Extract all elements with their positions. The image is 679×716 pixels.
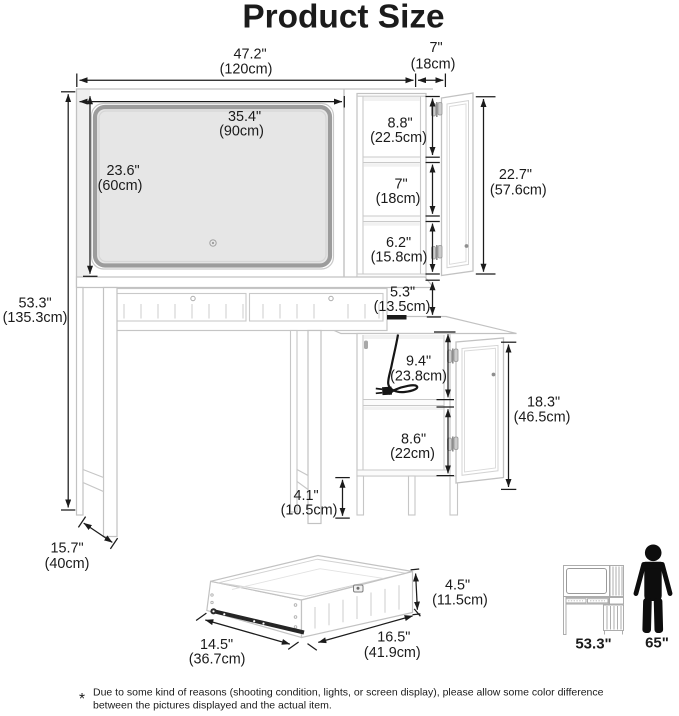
svg-text:65": 65"	[645, 635, 669, 652]
svg-text:7": 7"	[429, 40, 442, 56]
svg-text:(36.7cm): (36.7cm)	[189, 652, 246, 668]
svg-text:(46.5cm): (46.5cm)	[514, 410, 571, 426]
svg-text:14.5": 14.5"	[200, 637, 233, 653]
svg-text:(15.8cm): (15.8cm)	[371, 250, 428, 266]
svg-text:Product Size: Product Size	[242, 0, 444, 35]
svg-text:47.2": 47.2"	[233, 47, 266, 63]
svg-text:Due to some kind of reasons (s: Due to some kind of reasons (shooting co…	[93, 686, 604, 698]
svg-text:(18cm): (18cm)	[411, 57, 456, 73]
svg-text:(40cm): (40cm)	[45, 556, 90, 572]
svg-text:(41.9cm): (41.9cm)	[364, 645, 421, 661]
svg-text:16.5": 16.5"	[377, 630, 410, 646]
svg-text:(22.5cm): (22.5cm)	[370, 130, 427, 146]
svg-text:(22cm): (22cm)	[390, 446, 435, 462]
svg-text:(18cm): (18cm)	[376, 191, 421, 207]
svg-text:(90cm): (90cm)	[219, 123, 264, 139]
svg-text:(57.6cm): (57.6cm)	[490, 182, 547, 198]
svg-text:*: *	[79, 691, 85, 708]
svg-text:(135.3cm): (135.3cm)	[3, 310, 68, 326]
svg-text:(13.5cm): (13.5cm)	[374, 299, 431, 315]
svg-text:18.3": 18.3"	[527, 395, 560, 411]
svg-text:5.3": 5.3"	[390, 284, 415, 300]
svg-text:between the pictures displayed: between the pictures displayed and the a…	[93, 700, 332, 712]
svg-text:(60cm): (60cm)	[98, 178, 143, 194]
svg-text:(10.5cm): (10.5cm)	[281, 503, 338, 519]
svg-text:15.7": 15.7"	[50, 541, 83, 557]
svg-text:22.7": 22.7"	[499, 167, 532, 183]
svg-text:(120cm): (120cm)	[220, 62, 273, 78]
svg-text:(23.8cm): (23.8cm)	[390, 368, 447, 384]
svg-text:23.6": 23.6"	[106, 163, 139, 179]
svg-text:4.5": 4.5"	[445, 577, 470, 593]
svg-text:53.3": 53.3"	[575, 635, 611, 652]
svg-text:(11.5cm): (11.5cm)	[432, 593, 488, 609]
svg-text:9.4": 9.4"	[406, 354, 431, 370]
